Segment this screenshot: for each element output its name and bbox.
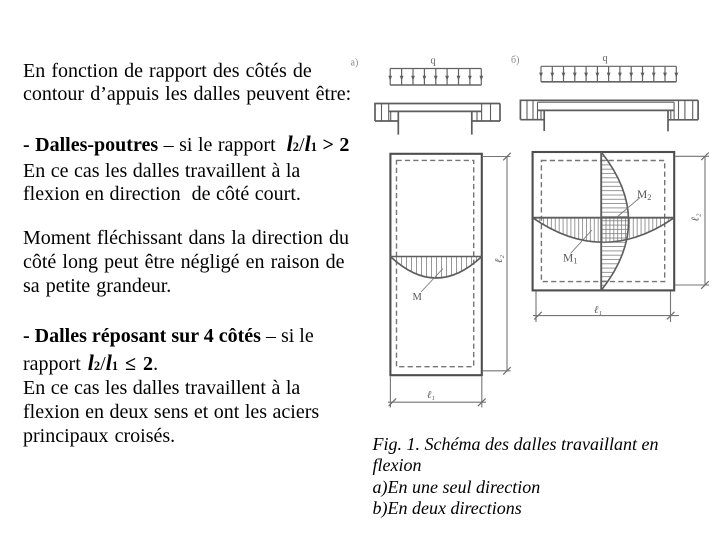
svg-text:ℓ₁: ℓ₁ bbox=[427, 390, 435, 401]
svg-text:ℓ₂: ℓ₂ bbox=[494, 255, 505, 263]
svg-text:ℓ₁: ℓ₁ bbox=[594, 305, 602, 316]
svg-text:M2: M2 bbox=[637, 189, 651, 202]
svg-text:ℓ₂: ℓ₂ bbox=[691, 213, 702, 221]
svg-text:M: M bbox=[413, 292, 423, 303]
svg-text:M1: M1 bbox=[563, 253, 577, 266]
svg-text:a): a) bbox=[351, 58, 359, 69]
svg-text:q: q bbox=[431, 56, 436, 67]
svg-text:q: q bbox=[603, 53, 608, 64]
svg-text:б): б) bbox=[511, 55, 519, 66]
